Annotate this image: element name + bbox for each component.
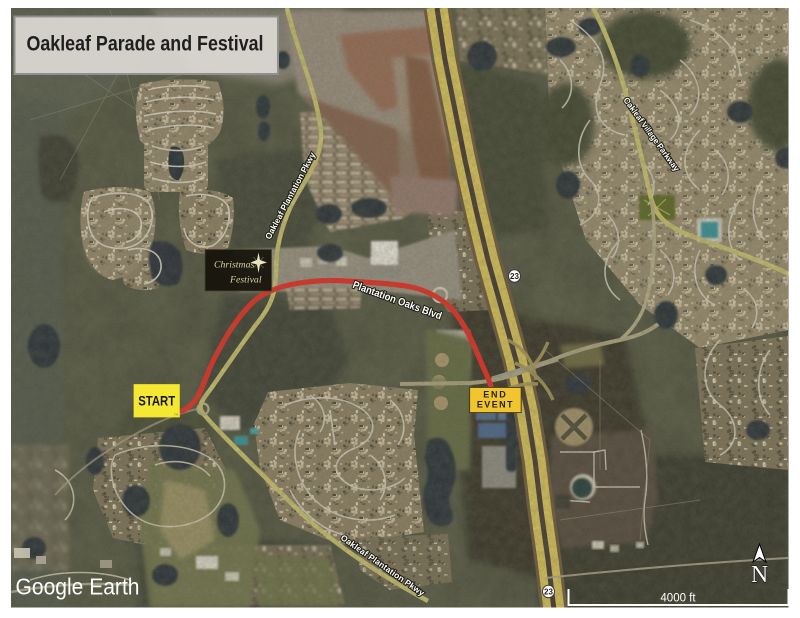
svg-text:TM: TM bbox=[174, 413, 179, 417]
svg-text:EVENT: EVENT bbox=[477, 399, 514, 409]
svg-text:23: 23 bbox=[544, 588, 553, 597]
svg-text:Christmas: Christmas bbox=[214, 260, 254, 271]
svg-text:4000 ft: 4000 ft bbox=[660, 593, 696, 605]
svg-text:N: N bbox=[751, 562, 768, 588]
svg-text:Festival: Festival bbox=[229, 275, 262, 286]
svg-text:END: END bbox=[483, 390, 507, 400]
svg-text:23: 23 bbox=[510, 272, 519, 281]
svg-text:Google Earth: Google Earth bbox=[16, 574, 140, 600]
svg-text:Oakleaf Parade and Festival: Oakleaf Parade and Festival bbox=[27, 33, 264, 56]
svg-text:START: START bbox=[138, 393, 175, 409]
